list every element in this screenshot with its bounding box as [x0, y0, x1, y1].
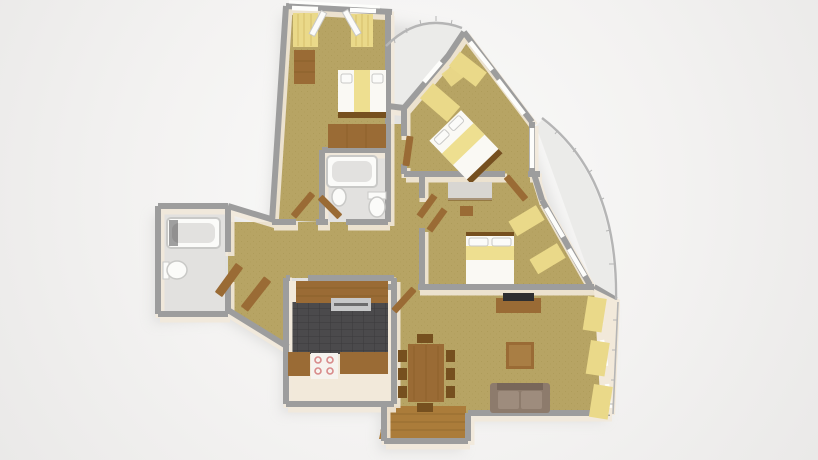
- toilet: [368, 192, 386, 217]
- bathtub: [167, 218, 220, 248]
- double-bed: [338, 70, 386, 118]
- double-bed: [466, 232, 514, 284]
- lower-counter-left: [288, 352, 310, 376]
- bathtub: [327, 156, 377, 187]
- sofa: [490, 383, 550, 413]
- wash-basin: [332, 188, 346, 206]
- coffee-table: [506, 342, 534, 369]
- render-canvas: [0, 0, 818, 460]
- wardrobe: [328, 124, 386, 148]
- dresser: [294, 50, 315, 84]
- lower-counter-right: [340, 352, 388, 374]
- cooktop: [311, 353, 338, 379]
- toilet: [163, 261, 187, 279]
- floor-plan-svg: [0, 0, 818, 460]
- desk: [448, 182, 492, 201]
- stool: [460, 206, 473, 216]
